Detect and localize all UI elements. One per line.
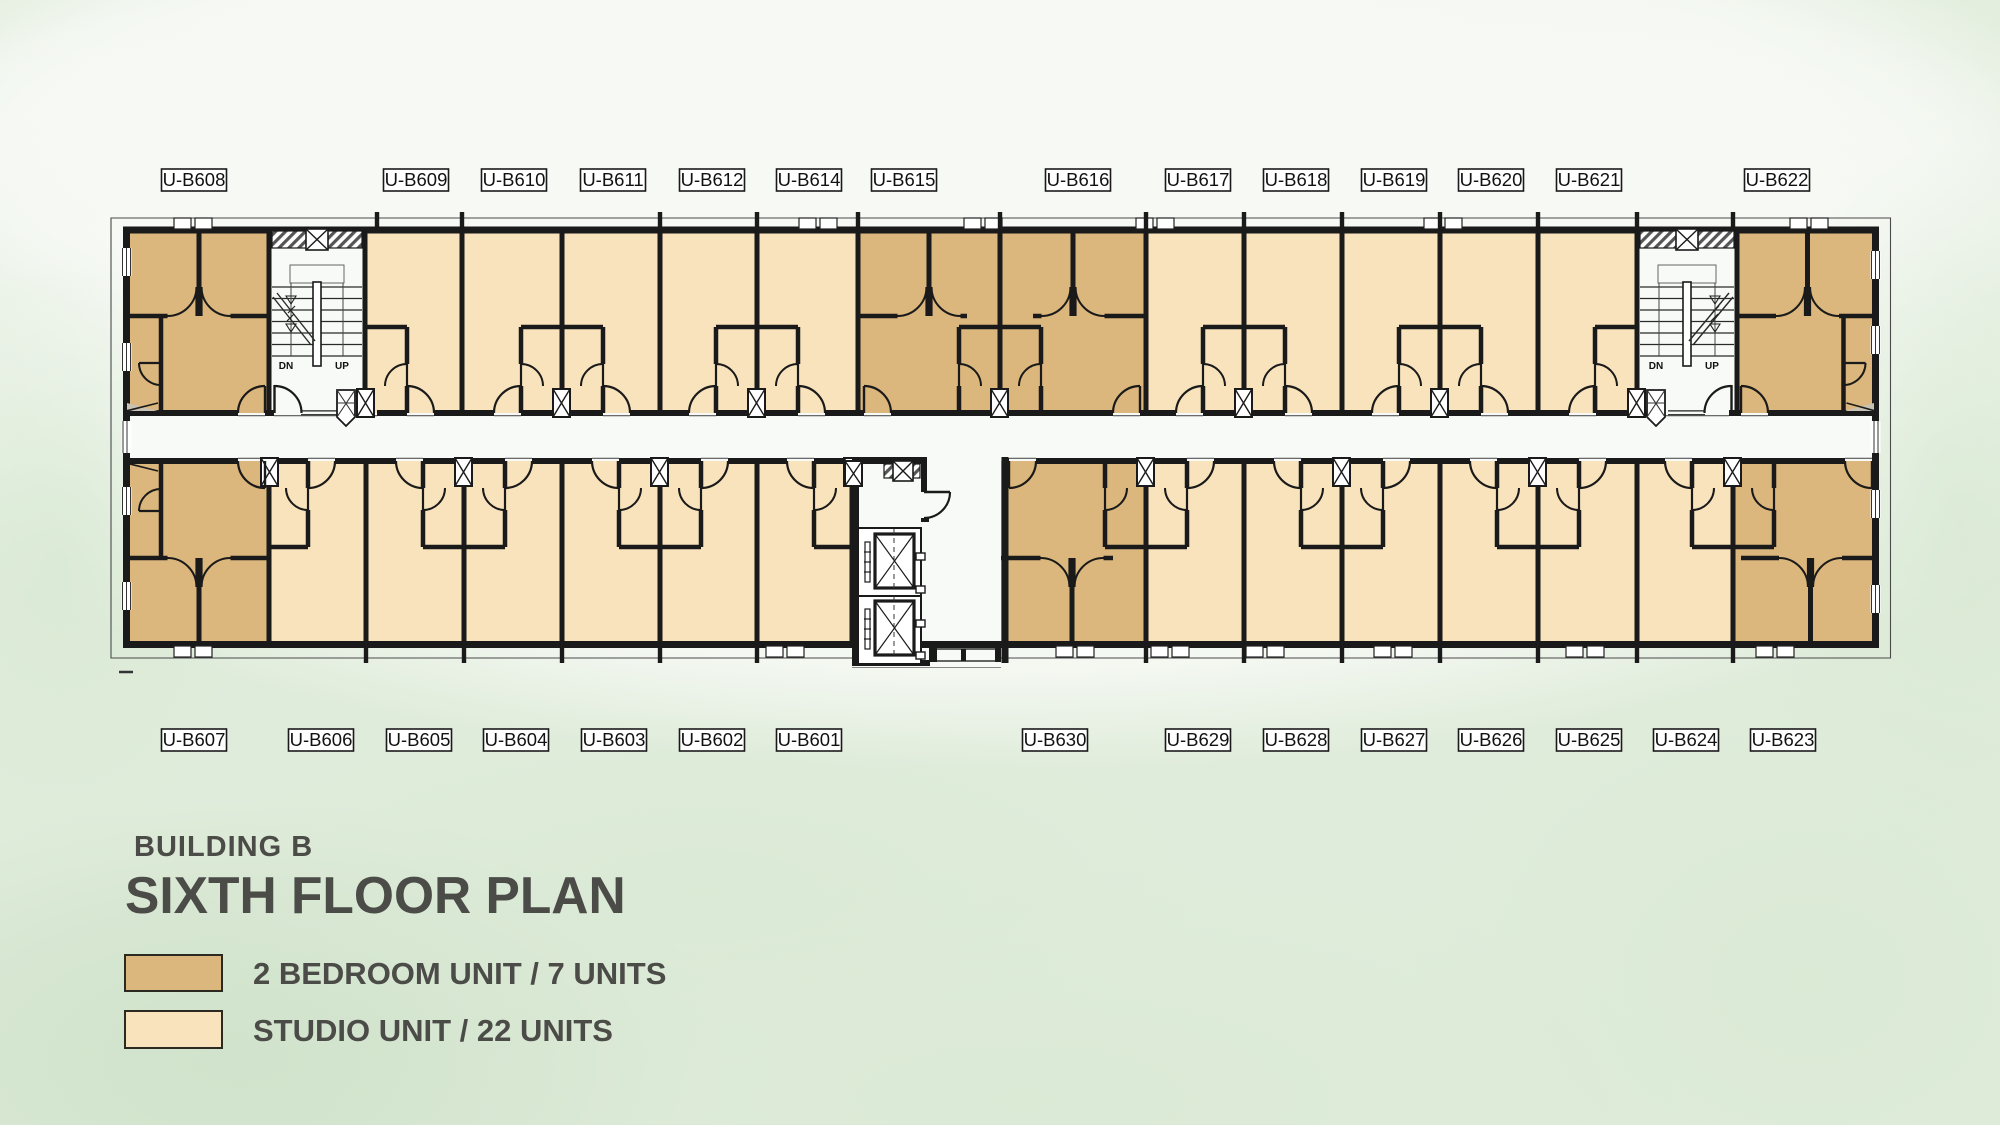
svg-text:U-B610: U-B610 — [483, 169, 546, 190]
svg-text:U-B627: U-B627 — [1363, 729, 1426, 750]
svg-text:U-B615: U-B615 — [873, 169, 936, 190]
svg-text:STUDIO UNIT / 22 UNITS: STUDIO UNIT / 22 UNITS — [253, 1013, 613, 1048]
svg-text:U-B604: U-B604 — [485, 729, 548, 750]
svg-text:U-B612: U-B612 — [681, 169, 744, 190]
svg-text:U-B620: U-B620 — [1460, 169, 1523, 190]
svg-text:U-B621: U-B621 — [1558, 169, 1621, 190]
svg-text:U-B606: U-B606 — [290, 729, 353, 750]
svg-text:U-B616: U-B616 — [1047, 169, 1110, 190]
svg-text:U-B601: U-B601 — [778, 729, 841, 750]
svg-text:U-B602: U-B602 — [681, 729, 744, 750]
svg-text:U-B614: U-B614 — [778, 169, 841, 190]
svg-text:U-B609: U-B609 — [385, 169, 448, 190]
svg-text:UP: UP — [1705, 361, 1719, 372]
svg-text:U-B603: U-B603 — [583, 729, 646, 750]
svg-text:U-B626: U-B626 — [1460, 729, 1523, 750]
svg-text:DN: DN — [279, 361, 293, 372]
svg-text:U-B611: U-B611 — [582, 169, 643, 190]
svg-text:U-B629: U-B629 — [1167, 729, 1230, 750]
svg-text:U-B623: U-B623 — [1752, 729, 1815, 750]
svg-text:U-B619: U-B619 — [1363, 169, 1426, 190]
svg-text:UP: UP — [335, 361, 349, 372]
svg-text:U-B625: U-B625 — [1558, 729, 1621, 750]
svg-text:SIXTH FLOOR PLAN: SIXTH FLOOR PLAN — [125, 866, 626, 924]
svg-text:U-B607: U-B607 — [163, 729, 226, 750]
svg-text:U-B605: U-B605 — [388, 729, 451, 750]
svg-text:BUILDING B: BUILDING B — [134, 831, 313, 863]
svg-text:U-B628: U-B628 — [1265, 729, 1328, 750]
svg-text:U-B608: U-B608 — [163, 169, 226, 190]
svg-text:U-B630: U-B630 — [1024, 729, 1087, 750]
svg-text:U-B618: U-B618 — [1265, 169, 1328, 190]
svg-text:U-B622: U-B622 — [1746, 169, 1809, 190]
svg-text:2 BEDROOM UNIT / 7 UNITS: 2 BEDROOM UNIT / 7 UNITS — [253, 956, 666, 991]
svg-text:DN: DN — [1649, 361, 1663, 372]
svg-text:U-B617: U-B617 — [1167, 169, 1230, 190]
svg-text:U-B624: U-B624 — [1655, 729, 1718, 750]
